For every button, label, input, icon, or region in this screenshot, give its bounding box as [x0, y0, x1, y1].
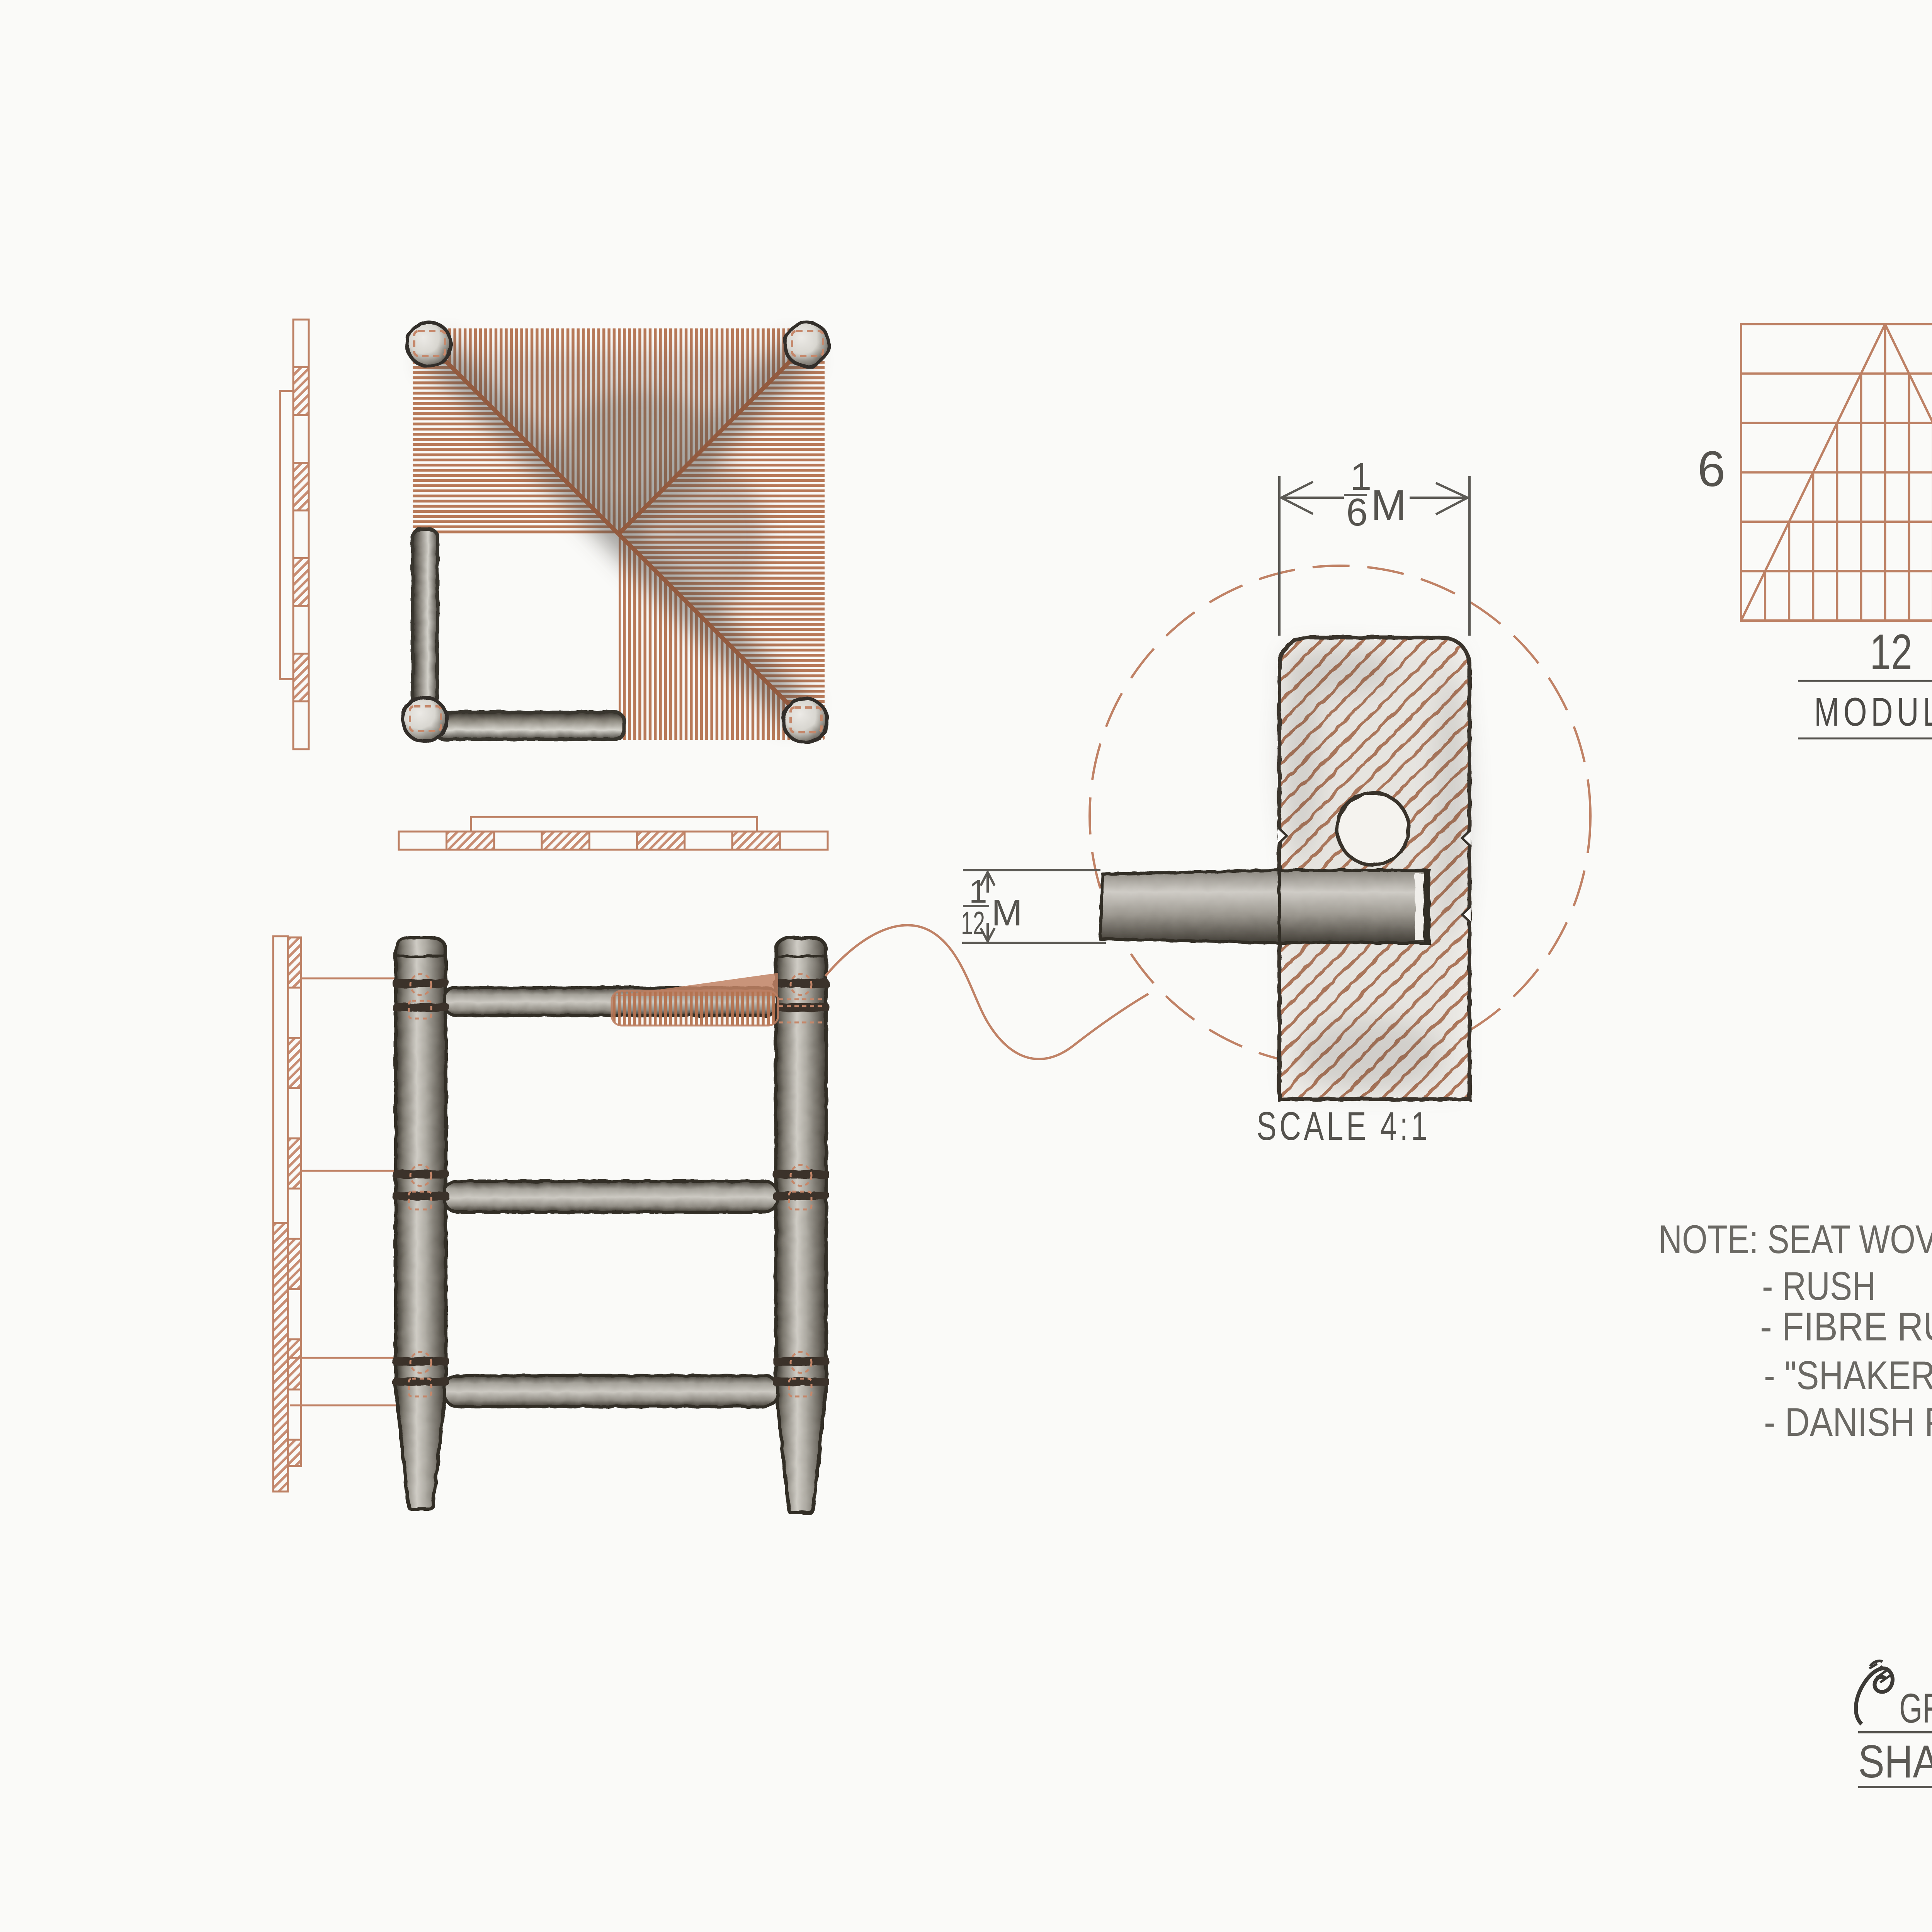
svg-text:12: 12: [1870, 624, 1912, 680]
svg-text:6: 6: [1697, 440, 1725, 497]
svg-text:SCALE 4:1: SCALE 4:1: [1257, 1104, 1430, 1149]
svg-text:6: 6: [1346, 491, 1368, 534]
svg-text:MODULE: MODULE: [1814, 690, 1932, 735]
svg-text:12: 12: [961, 905, 985, 941]
svg-text:- "SHAKER" TAPE: - "SHAKER" TAPE: [1764, 1353, 1932, 1398]
svg-text:GREGORY MERRITT JULY 2017: GREGORY MERRITT JULY 2017: [1899, 1685, 1932, 1731]
svg-text:M: M: [992, 892, 1022, 934]
svg-text:- FIBRE RUSH: - FIBRE RUSH: [1760, 1304, 1932, 1349]
svg-text:SHAKER STOOL 240 MOD: SHAKER STOOL 240 MOD: [1858, 1736, 1932, 1787]
svg-text:M: M: [1371, 481, 1406, 529]
svg-text:- DANISH PAPER CORD: - DANISH PAPER CORD: [1764, 1400, 1932, 1445]
svg-text:1: 1: [969, 873, 987, 910]
svg-text:NOTE: SEAT WOVEN FROM: NOTE: SEAT WOVEN FROM: [1658, 1217, 1932, 1262]
svg-text:- RUSH: - RUSH: [1762, 1264, 1876, 1309]
